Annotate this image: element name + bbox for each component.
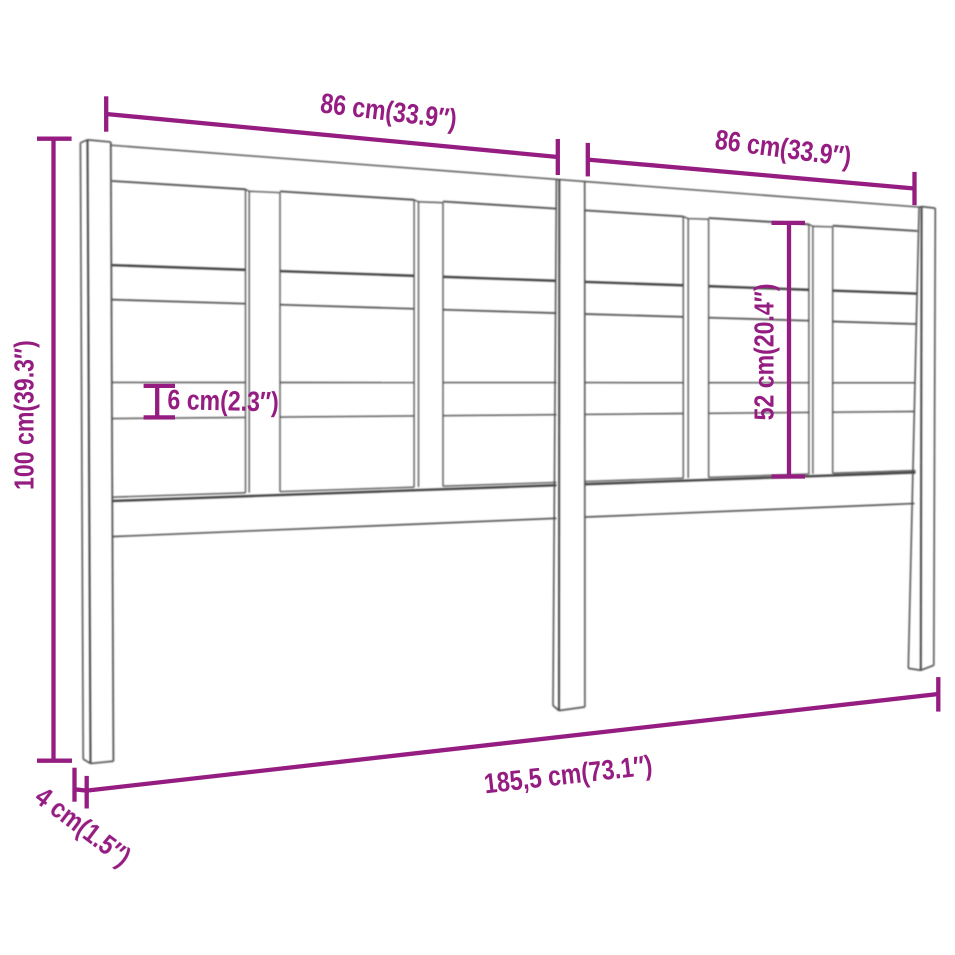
svg-text:6 cm(2.3″): 6 cm(2.3″) xyxy=(167,385,279,418)
svg-text:52 cm(20.4″): 52 cm(20.4″) xyxy=(749,283,780,420)
svg-text:100 cm(39.3″): 100 cm(39.3″) xyxy=(10,340,41,490)
